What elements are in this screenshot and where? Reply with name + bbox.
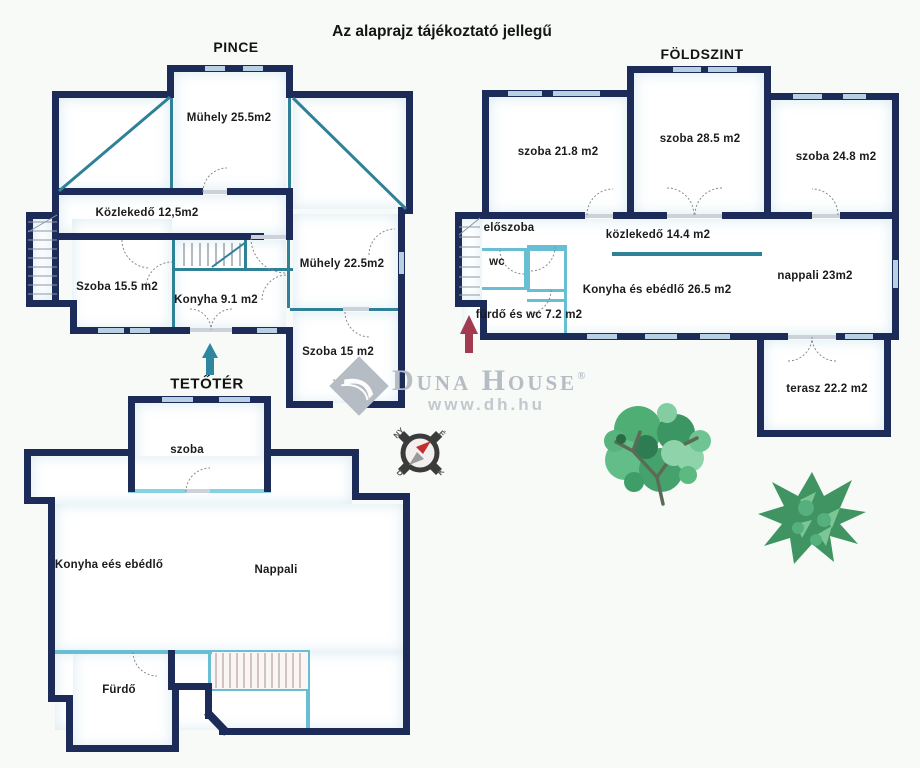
- room-label: előszoba: [484, 222, 535, 234]
- room-label: fürdő és wc 7.2 m2: [476, 309, 583, 321]
- pince-shaft-stairs: [28, 215, 57, 294]
- room-label: szoba 28.5 m2: [660, 133, 741, 145]
- tree-spiky: [758, 472, 866, 564]
- floor-title-tetoter: TETŐTÉR: [170, 376, 244, 393]
- floor-title-foldszint: FÖLDSZINT: [660, 46, 743, 62]
- room-label: Mühely 22.5m2: [300, 258, 384, 270]
- tetoter-diagonal-wall: [207, 712, 227, 733]
- room-label: Szoba 15.5 m2: [76, 281, 158, 293]
- watermark-url: www.dh.hu: [428, 395, 545, 415]
- room-label: Mühely 25.5m2: [187, 112, 271, 124]
- room-label: Fürdő: [102, 684, 136, 696]
- floor-title-pince: PINCE: [213, 39, 258, 55]
- room-label: szoba: [170, 444, 204, 456]
- tree-round: [604, 403, 711, 504]
- door-arcs: [122, 168, 838, 676]
- room-label: közlekedő 14.4 m2: [606, 229, 710, 241]
- dunahouse-logo-icon: [329, 356, 388, 415]
- up-arrow-icon: [202, 343, 218, 375]
- registered-mark: ®: [577, 370, 588, 382]
- room-label: szoba 24.8 m2: [796, 151, 877, 163]
- room-label: Szoba 15 m2: [302, 346, 374, 358]
- room-label: Konyha és ebédlő 26.5 m2: [583, 284, 732, 296]
- room-label: nappali 23m2: [777, 270, 852, 282]
- page-title: Az alaprajz tájékoztató jellegű: [332, 23, 552, 41]
- room-label: szoba 21.8 m2: [518, 146, 599, 158]
- foldszint-stairs: [459, 218, 480, 295]
- tetoter-stairs: [212, 652, 308, 689]
- watermark-brand: Duna House®: [392, 364, 588, 398]
- room-label: Konyha 9.1 m2: [174, 294, 258, 306]
- room-label: wc: [489, 256, 505, 268]
- room-label: Közlekedő 12,5m2: [96, 207, 199, 219]
- room-label: terasz 22.2 m2: [786, 383, 867, 395]
- floorplan-canvas: NY É D K Az alaprajz tájékoztató jellegű…: [0, 0, 920, 768]
- room-label: Konyha eés ebédlő: [55, 559, 163, 571]
- compass-icon: [398, 431, 442, 475]
- pince-kitchen-stairs: [184, 242, 246, 267]
- room-label: Nappali: [255, 564, 298, 576]
